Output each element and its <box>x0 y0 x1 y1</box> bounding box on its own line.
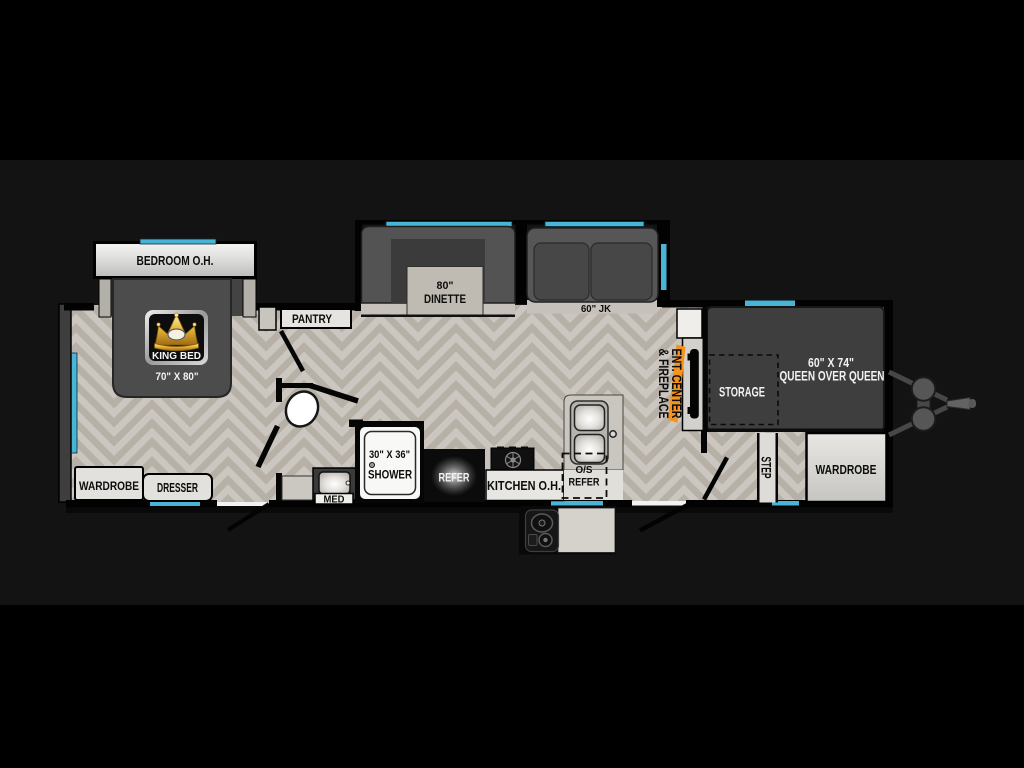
svg-text:DRESSER: DRESSER <box>157 481 198 495</box>
svg-text:60" JK: 60" JK <box>581 304 612 315</box>
svg-text:PANTRY: PANTRY <box>292 312 332 326</box>
svg-text:KING BED: KING BED <box>152 351 201 362</box>
svg-text:30" X 36": 30" X 36" <box>369 449 410 461</box>
svg-text:QUEEN OVER QUEEN: QUEEN OVER QUEEN <box>780 369 885 384</box>
svg-text:REFER: REFER <box>439 471 470 485</box>
svg-text:BEDROOM O.H.: BEDROOM O.H. <box>137 253 214 268</box>
svg-text:STEP: STEP <box>759 457 774 479</box>
svg-text:STORAGE: STORAGE <box>719 384 765 400</box>
svg-text:O/S: O/S <box>576 465 593 476</box>
svg-text:REFER: REFER <box>569 477 600 489</box>
svg-text:WARDROBE: WARDROBE <box>816 463 877 477</box>
svg-text:& FIREPLACE: & FIREPLACE <box>656 349 671 419</box>
svg-text:70" X 80": 70" X 80" <box>156 371 199 383</box>
svg-text:WARDROBE: WARDROBE <box>79 479 139 493</box>
svg-text:DINETTE: DINETTE <box>424 292 466 306</box>
svg-text:KITCHEN O.H.: KITCHEN O.H. <box>487 479 561 493</box>
svg-text:SHOWER: SHOWER <box>368 470 413 482</box>
svg-text:MED: MED <box>324 495 345 506</box>
svg-text:80": 80" <box>437 280 454 292</box>
